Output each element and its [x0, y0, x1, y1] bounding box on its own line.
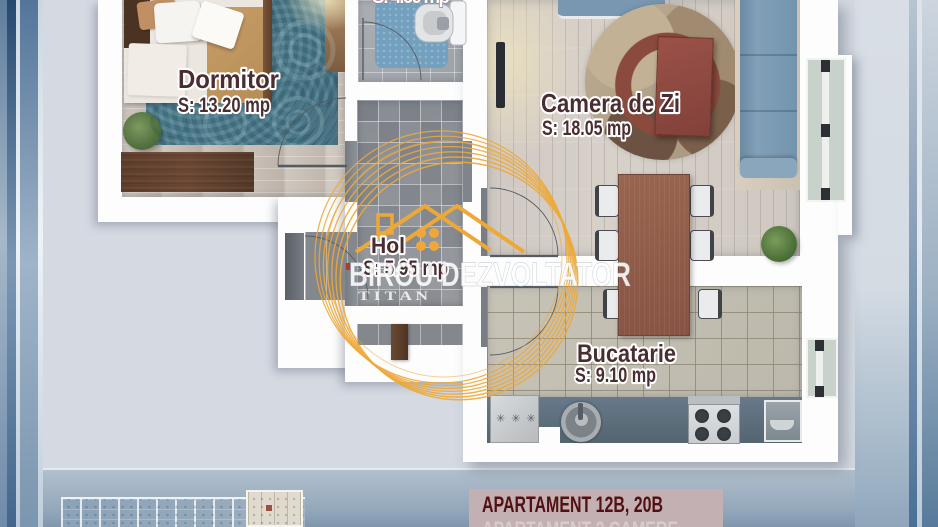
svg-text:APARTAMENT 2 CAMERE: APARTAMENT 2 CAMERE: [482, 517, 678, 527]
svg-text:APARTAMENT 12B, 20B: APARTAMENT 12B, 20B: [482, 492, 663, 517]
svg-text:T I T A N: T I T A N: [358, 288, 429, 303]
svg-text:S: 9.10 mp: S: 9.10 mp: [575, 364, 656, 387]
svg-text:Dormitor: Dormitor: [178, 64, 279, 94]
svg-text:S: 4.60 mp: S: 4.60 mp: [372, 0, 450, 8]
svg-text:S: 13.20 mp: S: 13.20 mp: [178, 94, 270, 117]
svg-text:Camera de Zi: Camera de Zi: [541, 88, 680, 118]
svg-text:S: 18.05 mp: S: 18.05 mp: [542, 117, 631, 140]
svg-text:Hol: Hol: [371, 233, 405, 258]
